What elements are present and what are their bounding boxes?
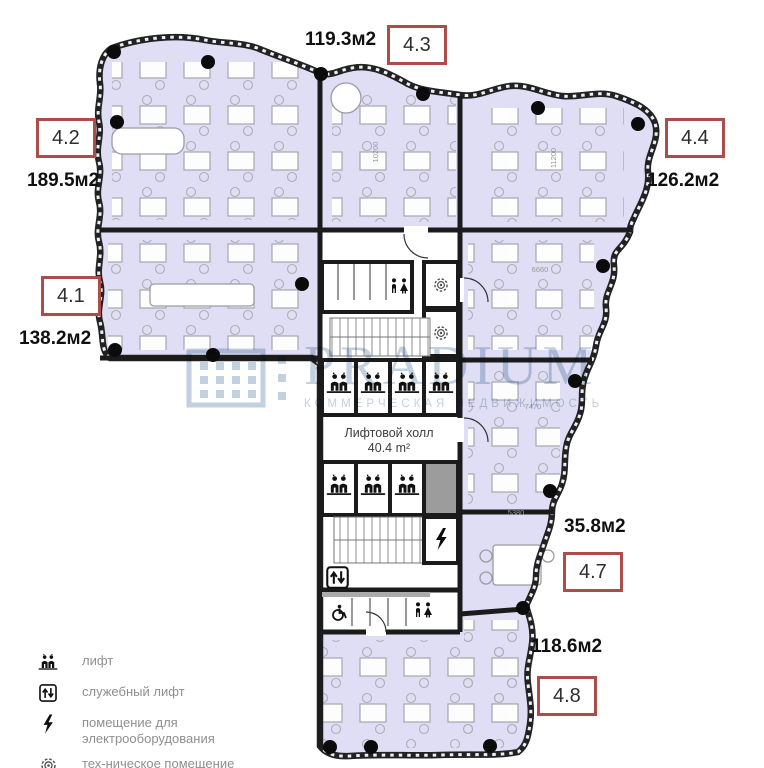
unit-box-4.1: 4.1 — [41, 276, 101, 316]
unit-box-4.7: 4.7 — [563, 552, 623, 592]
svg-text:7470: 7470 — [525, 402, 542, 411]
gear-icon — [36, 753, 60, 768]
legend-label: лифт — [82, 650, 113, 669]
svg-text:10200: 10200 — [371, 142, 380, 163]
unit-box-4.2: 4.2 — [36, 118, 96, 158]
unit-box-4.4: 4.4 — [665, 118, 725, 158]
svg-text:11200: 11200 — [549, 148, 558, 168]
svg-text:40.4 m²: 40.4 m² — [368, 441, 410, 455]
floor-plan-page: Лифтовой холл 40.4 m² — [0, 0, 764, 768]
unit-box-4.8: 4.8 — [537, 676, 597, 716]
unit-area-4.1: 138.2м2 — [19, 328, 91, 350]
unit-area-4.3: 119.3м2 — [305, 29, 376, 51]
legend: лифт служебный лифт помещение дляэлектро… — [36, 650, 266, 768]
legend-label: тех-ническое помещение — [82, 753, 234, 768]
legend-item-electrical: помещение дляэлектрооборудования — [36, 712, 266, 746]
svg-text:Лифтовой холл: Лифтовой холл — [344, 426, 433, 440]
legend-label: служебный лифт — [82, 681, 185, 700]
shaft-gray — [426, 464, 456, 513]
unit-box-4.3: 4.3 — [387, 25, 447, 65]
elevator-bank-bottom — [322, 462, 458, 515]
svg-text:5380: 5380 — [508, 508, 525, 517]
svg-text:6660: 6660 — [532, 265, 549, 274]
elevator-icon — [36, 650, 60, 674]
legend-item-technical: тех-ническое помещение — [36, 753, 266, 768]
legend-label: помещение дляэлектрооборудования — [82, 712, 215, 746]
service-elevator-icon — [327, 567, 347, 587]
lightning-icon — [36, 712, 60, 736]
unit-area-4.7: 35.8м2 — [564, 516, 626, 538]
legend-item-lift: лифт — [36, 650, 266, 674]
unit-area-4.8: 118.6м2 — [531, 636, 602, 658]
service-elevator-icon — [36, 681, 60, 705]
legend-item-service-lift: служебный лифт — [36, 681, 266, 705]
unit-area-4.4: 126.2м2 — [647, 170, 719, 192]
unit-area-4.2: 189.5м2 — [27, 170, 99, 192]
elevator-bank-top — [322, 360, 458, 415]
